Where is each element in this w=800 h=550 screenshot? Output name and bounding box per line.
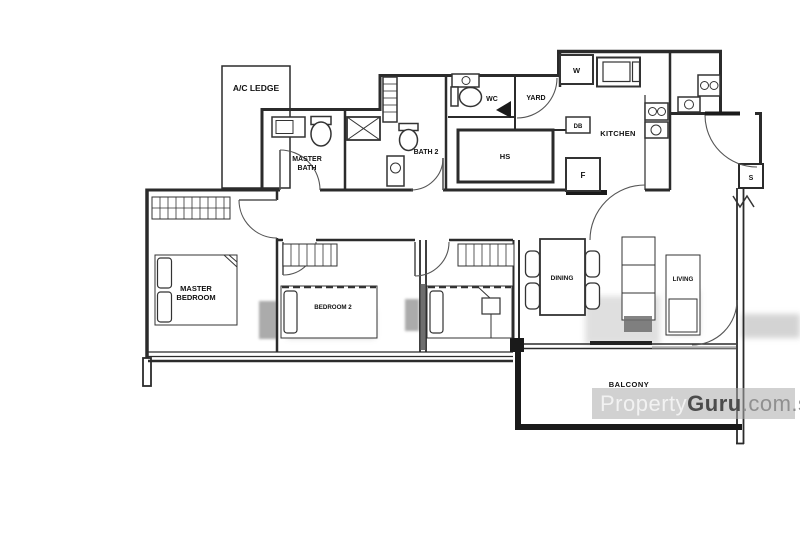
toilet-icon xyxy=(311,122,331,146)
pillow-icon xyxy=(158,292,172,322)
toilet-icon xyxy=(460,88,482,107)
door-arc-master-bedroom xyxy=(239,200,277,238)
label-yard: YARD xyxy=(526,95,545,102)
floor-plan: A/C LEDGE MASTER BATH BATH 2 WC YARD KIT… xyxy=(0,0,800,550)
watermark-property: Property xyxy=(600,391,687,416)
label-master-bath: BATH xyxy=(298,165,317,172)
pillow-icon xyxy=(284,291,297,333)
chair-icon xyxy=(586,283,600,309)
label-bath2: BATH 2 xyxy=(414,149,439,156)
label-hs: HS xyxy=(500,152,510,161)
label-wc: WC xyxy=(486,96,498,103)
label-master-bedroom: MASTER xyxy=(180,284,212,293)
wc-door-icon xyxy=(496,101,511,118)
chair-icon xyxy=(526,251,540,277)
pillow-icon xyxy=(430,291,443,333)
label-fridge: F xyxy=(581,171,586,180)
door-arc-bath2 xyxy=(411,158,443,190)
chair-icon xyxy=(586,251,600,277)
label-master-bath: MASTER xyxy=(292,156,322,163)
label-shoe-cabinet: S xyxy=(749,175,754,182)
label-dining: DINING xyxy=(551,275,574,282)
propertyguru-watermark: PropertyGuru.com.sg xyxy=(592,388,795,419)
chair-icon xyxy=(526,283,540,309)
label-kitchen: KITCHEN xyxy=(600,129,635,138)
label-master-bedroom: BEDROOM xyxy=(176,293,215,302)
tv-console-icon xyxy=(622,237,655,320)
watermark-guru: Guru xyxy=(687,391,742,416)
toilet-icon xyxy=(400,130,418,151)
toilet-tank-icon xyxy=(451,87,458,106)
floor-plan-page: A/C LEDGE MASTER BATH BATH 2 WC YARD KIT… xyxy=(0,0,800,550)
label-db: DB xyxy=(574,124,583,130)
pillow-icon xyxy=(158,258,172,288)
label-bedroom2: BEDROOM 2 xyxy=(314,304,352,311)
label-living: LIVING xyxy=(673,276,694,283)
walls xyxy=(143,50,763,444)
label-ac-ledge: A/C LEDGE xyxy=(233,83,280,93)
door-arc-main-entrance xyxy=(705,115,757,167)
label-washer: W xyxy=(573,66,581,75)
watermark-suffix: .com.sg xyxy=(742,391,800,416)
